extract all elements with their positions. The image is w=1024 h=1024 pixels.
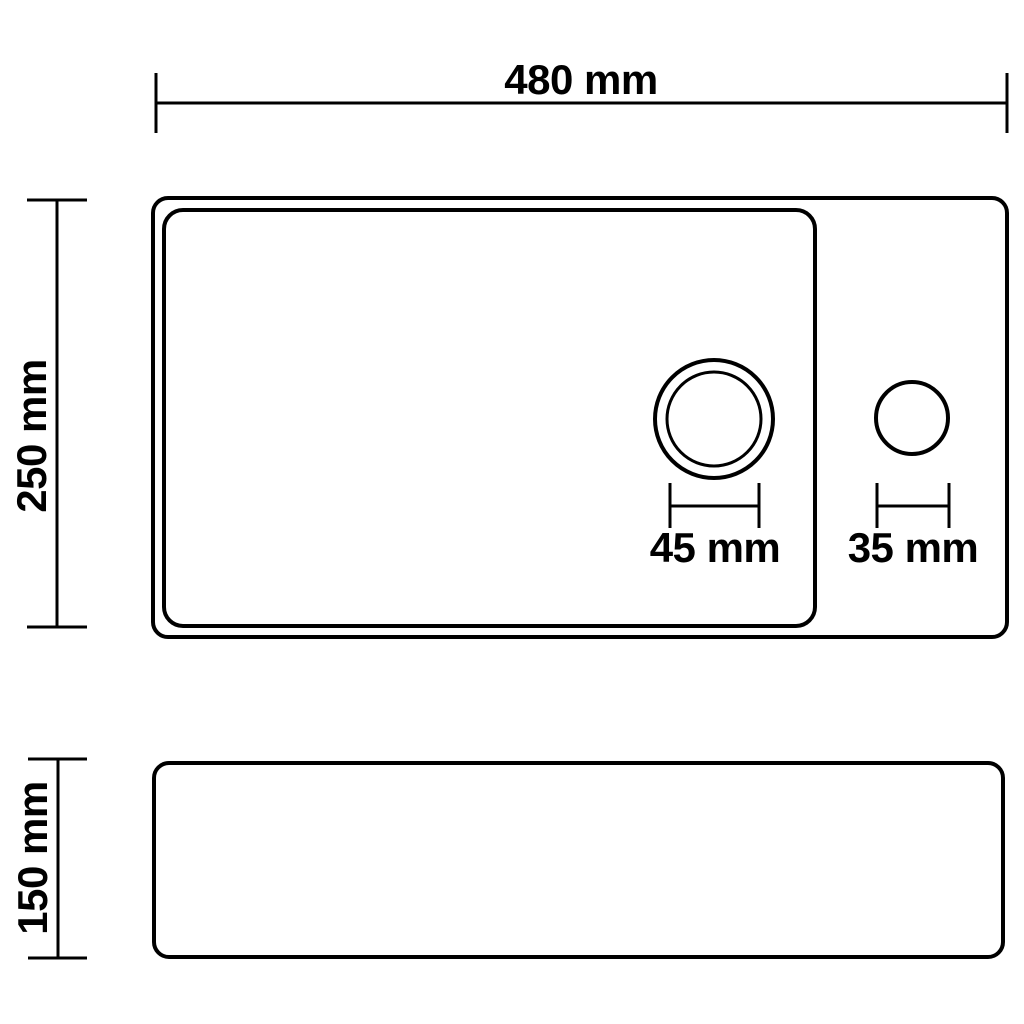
depth-dimension-label: 250 mm: [8, 359, 55, 512]
height-dimension: 150 mm: [9, 759, 87, 958]
width-dimension-label: 480 mm: [504, 56, 657, 103]
faucet-dimension: 35 mm: [848, 483, 979, 571]
diagram-root: 480 mm 250 mm 45 mm: [8, 56, 1007, 958]
width-dimension: 480 mm: [156, 56, 1007, 133]
drain-dimension-label: 45 mm: [650, 524, 781, 571]
drain-outer-circle: [655, 360, 773, 478]
faucet-hole-circle: [876, 382, 948, 454]
sink-top-view: [153, 198, 1007, 637]
sink-side-view: [154, 763, 1003, 957]
diagram-canvas: 480 mm 250 mm 45 mm: [0, 0, 1024, 1024]
depth-dimension: 250 mm: [8, 200, 87, 627]
faucet-dimension-label: 35 mm: [848, 524, 979, 571]
sink-rim-outline: [153, 198, 1007, 637]
sink-dimension-diagram: 480 mm 250 mm 45 mm: [0, 0, 1024, 1024]
drain-dimension: 45 mm: [650, 483, 781, 571]
height-dimension-label: 150 mm: [9, 781, 56, 934]
drain-inner-circle: [667, 372, 761, 466]
side-view-outline: [154, 763, 1003, 957]
